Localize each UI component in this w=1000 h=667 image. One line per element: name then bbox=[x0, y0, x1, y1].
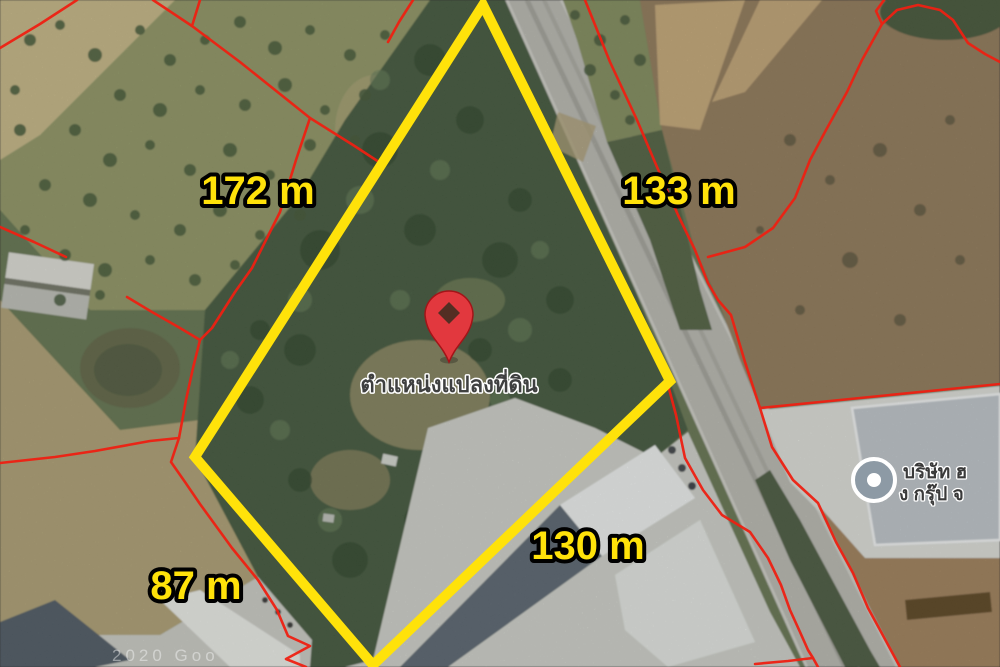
business-poi[interactable]: บริษัท ฮ ง กรุ๊ป จ bbox=[853, 459, 967, 506]
measurement-label-east: 133 m bbox=[622, 169, 735, 213]
poi-dot bbox=[867, 473, 881, 487]
measurement-label-southwest: 87 m bbox=[150, 564, 241, 608]
satellite-map[interactable]: 2020 Goo 172 m 133 m 130 m 87 m ตำแหน่งแ… bbox=[0, 0, 1000, 667]
map-viewport: 2020 Goo 172 m 133 m 130 m 87 m ตำแหน่งแ… bbox=[0, 0, 1000, 667]
measurement-label-south: 130 m bbox=[531, 524, 644, 568]
business-label-line1: บริษัท ฮ bbox=[903, 462, 967, 483]
business-label-line2: ง กรุ๊ป จ bbox=[899, 483, 964, 506]
imagery-watermark: 2020 Goo bbox=[112, 646, 219, 665]
measurement-label-west: 172 m bbox=[201, 169, 314, 213]
pin-label: ตำแหน่งแปลงที่ดิน bbox=[360, 368, 537, 397]
